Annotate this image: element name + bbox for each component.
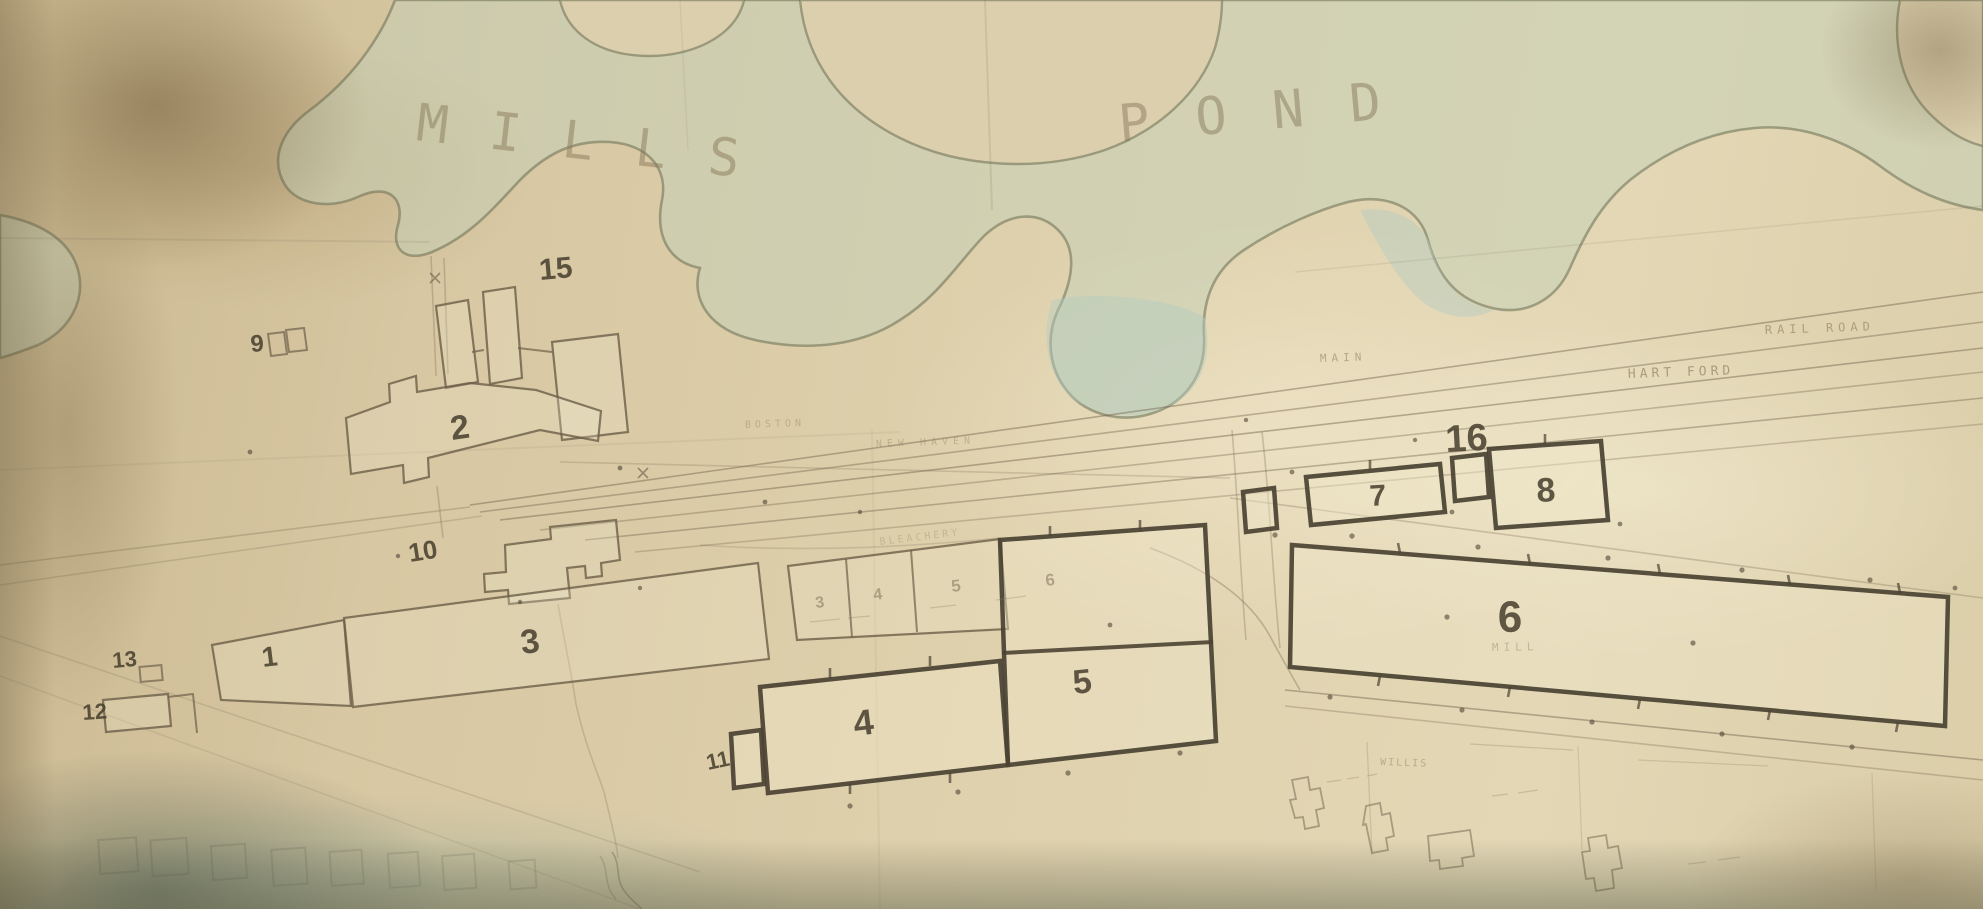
- building-9-outline: [268, 328, 307, 356]
- building-label-11: 11: [704, 746, 732, 775]
- note-mill: MILL: [1492, 640, 1539, 654]
- building-label-16: 16: [1444, 417, 1488, 461]
- houses-bottom-left: [98, 810, 536, 909]
- building-15-rect-a: [436, 300, 478, 388]
- railroad-label-new-haven: NEW HAVEN: [876, 436, 976, 450]
- building-label-7: 7: [1369, 479, 1387, 513]
- house-outline: [1428, 830, 1474, 869]
- site-plan-drawing: MILLS POND MAIN RAIL ROAD HART FORD BOST…: [0, 0, 1983, 909]
- building-13-outline: [139, 665, 162, 682]
- building-6-outline: [1290, 545, 1948, 726]
- building-label-13: 13: [111, 646, 138, 673]
- building-label-5: 5: [1071, 662, 1094, 702]
- house-outline: [1582, 835, 1622, 891]
- building-16-outline: [1452, 454, 1489, 501]
- pond-green-patch-1: [1047, 296, 1208, 415]
- rooms-building-outline: [788, 539, 1008, 640]
- room-label-6: 6: [1044, 570, 1055, 590]
- map-photo: MILLS POND MAIN RAIL ROAD HART FORD BOST…: [0, 0, 1983, 909]
- small-square-building-a: [1243, 488, 1277, 532]
- building-15-rect-b: [483, 287, 522, 384]
- house-outline: [1363, 803, 1394, 853]
- building-12-outline: [103, 694, 171, 732]
- house-outline: [1290, 777, 1324, 829]
- building-label-15: 15: [538, 251, 574, 287]
- building-1-outline: [212, 620, 351, 706]
- railroad-label-boston: BOSTON: [745, 418, 805, 431]
- building-label-10: 10: [406, 534, 439, 568]
- building-label-6: 6: [1497, 593, 1522, 642]
- railroad-label-rail-road: RAIL ROAD: [1765, 319, 1875, 337]
- building-label-12: 12: [82, 698, 108, 725]
- building-11-outline: [731, 730, 764, 788]
- houses-bottom-right: [1290, 742, 1876, 891]
- railroad-label-main: MAIN: [1320, 350, 1367, 365]
- note-willis: WILLIS: [1380, 757, 1428, 770]
- building-label-8: 8: [1535, 471, 1556, 510]
- building-label-9: 9: [250, 330, 265, 358]
- buildings-pencil: [103, 287, 1008, 733]
- pond-left-arm: [0, 215, 80, 358]
- building-4-outline: [760, 661, 1008, 793]
